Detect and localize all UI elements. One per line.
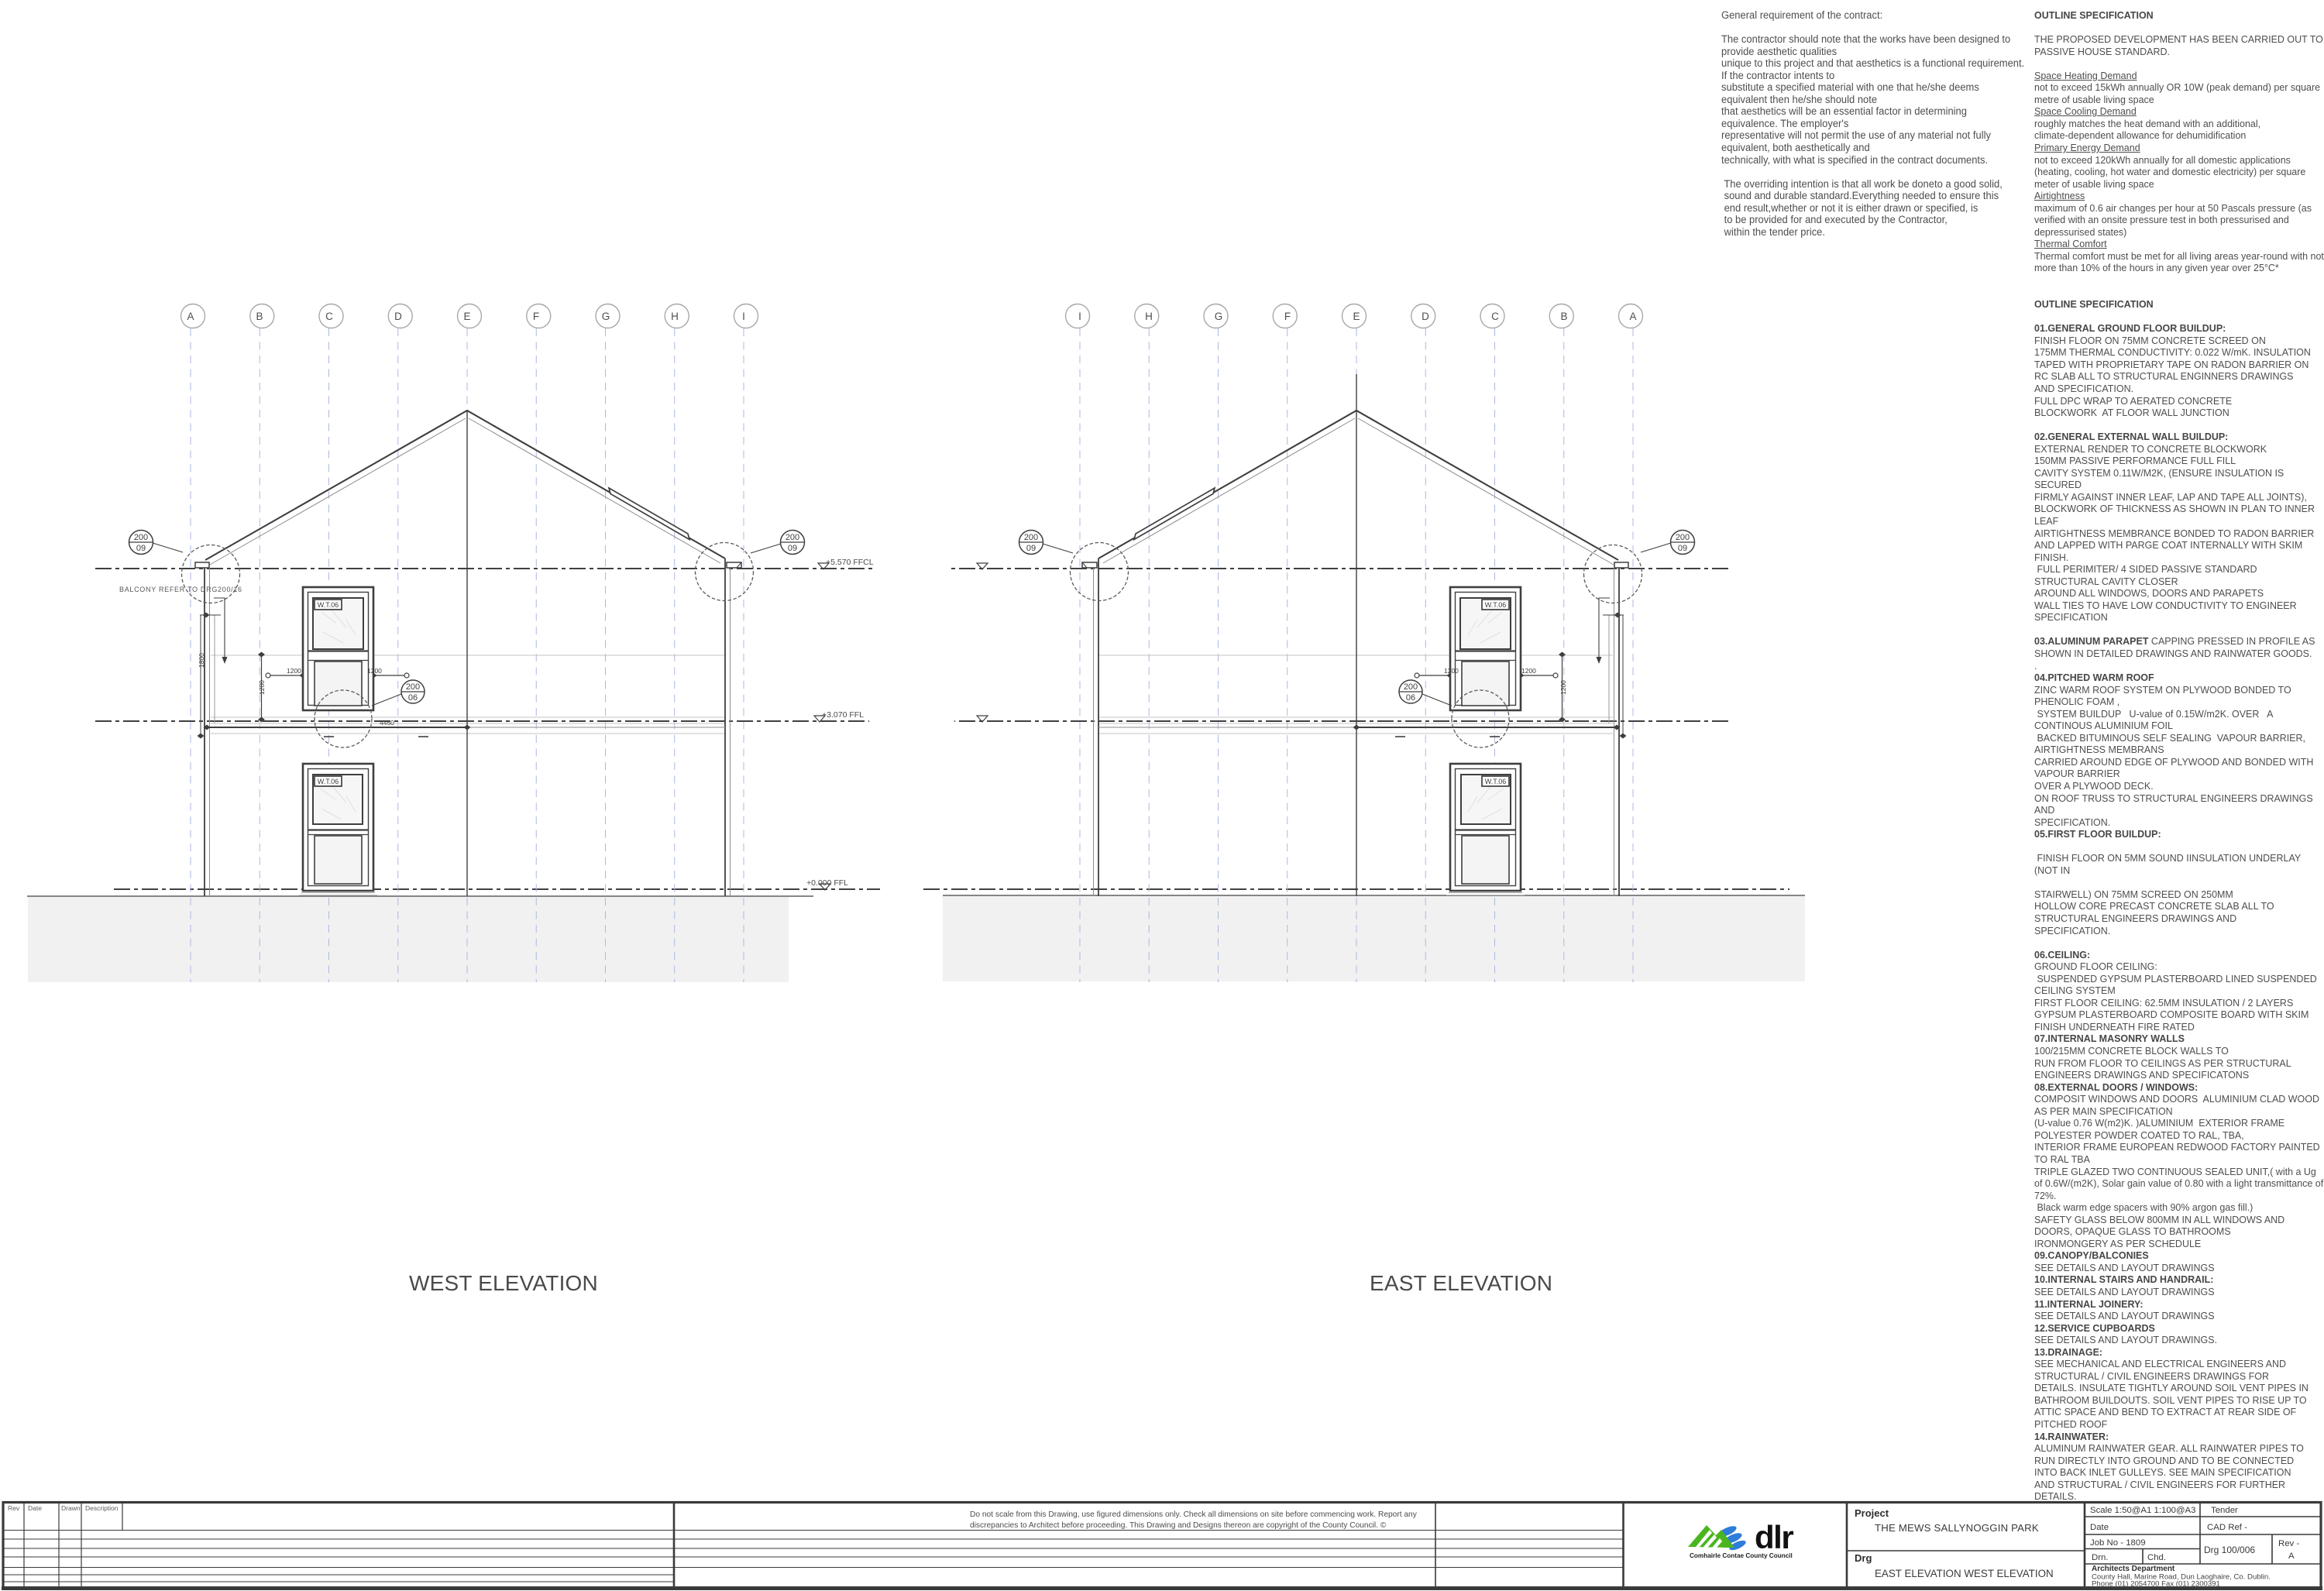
svg-text:EAST ELEVATION WEST ELEVATION: EAST ELEVATION WEST ELEVATION [1875,1568,2054,1579]
svg-text:Date: Date [28,1504,42,1512]
svg-text:Do not scale from this Drawing: Do not scale from this Drawing, use figu… [970,1510,1418,1519]
svg-text:CAD Ref -: CAD Ref - [2207,1523,2247,1532]
svg-text:Rev -: Rev - [2278,1539,2299,1548]
svg-text:Job No - 1809: Job No - 1809 [2090,1538,2146,1548]
svg-text:Drg: Drg [1855,1552,1872,1564]
svg-text:Project: Project [1855,1507,1889,1519]
svg-text:Drg 100/006: Drg 100/006 [2204,1545,2255,1555]
svg-text:Scale 1:50@A1 1:100@A3: Scale 1:50@A1 1:100@A3 [2090,1506,2196,1515]
svg-text:Date: Date [2090,1523,2109,1532]
svg-text:Chd.: Chd. [2147,1553,2166,1562]
svg-text:Phone (01) 2054700 Fax (01) 2: Phone (01) 2054700 Fax (01) 2300391 [2092,1580,2220,1589]
svg-text:Drn.: Drn. [2092,1553,2109,1562]
svg-text:Description: Description [85,1504,119,1512]
svg-text:Drawn: Drawn [61,1504,81,1512]
svg-text:A: A [2288,1551,2295,1561]
svg-text:dlr: dlr [1755,1519,1793,1555]
svg-text:Rev: Rev [8,1504,20,1512]
svg-text:Tender: Tender [2211,1506,2238,1515]
svg-text:Comhairle Contae County Counci: Comhairle Contae County Council [1690,1552,1793,1559]
svg-text:Architects Department: Architects Department [2092,1565,2175,1573]
svg-text:THE MEWS SALLYNOGGIN PARK: THE MEWS SALLYNOGGIN PARK [1875,1522,2039,1534]
svg-text:discrepancies to Architect bef: discrepancies to Architect before procee… [970,1521,1387,1530]
